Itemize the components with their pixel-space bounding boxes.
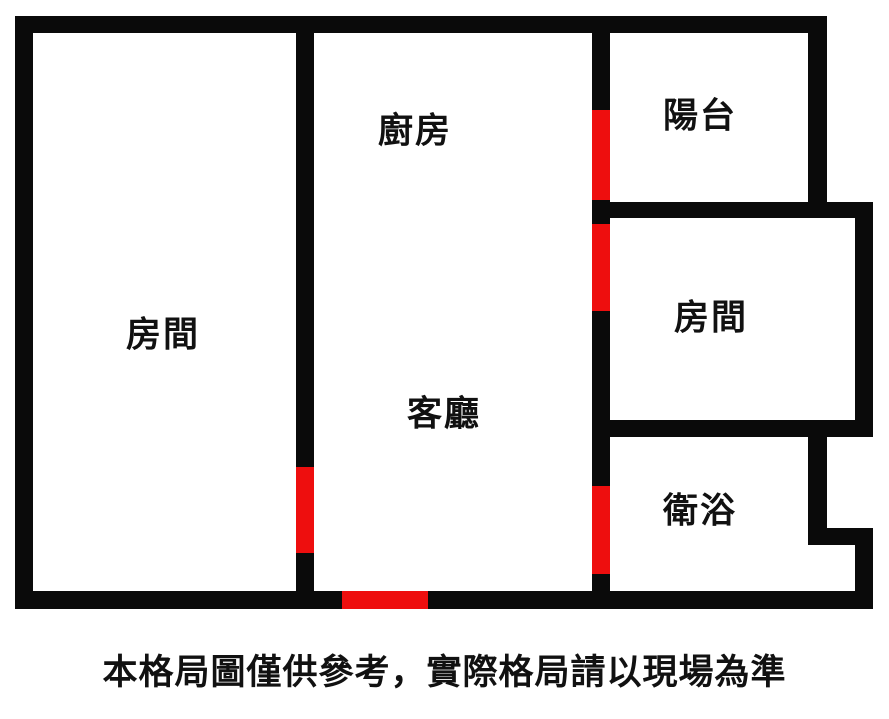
wall-bathroom-right <box>808 420 827 545</box>
floorplan-canvas: 房間廚房客廳陽台房間衛浴 <box>0 0 889 640</box>
door-main-entrance <box>342 591 428 609</box>
wall-balcony-right <box>808 16 827 218</box>
room-label-kitchen: 廚房 <box>378 114 452 149</box>
wall-bottom <box>15 591 873 609</box>
door-bedroom-left <box>296 467 314 553</box>
door-bathroom <box>592 486 610 574</box>
wall-balcony-bottom <box>592 202 873 218</box>
wall-top <box>15 16 827 33</box>
wall-bedroom-right-bathroom-divider <box>592 420 873 437</box>
room-label-balcony: 陽台 <box>663 99 737 134</box>
room-label-bathroom: 衛浴 <box>663 494 737 529</box>
wall-outer-right-lower <box>855 528 873 609</box>
disclaimer-text: 本格局圖僅供參考，實際格局請以現場為準 <box>0 653 889 693</box>
door-balcony <box>592 110 610 200</box>
door-bedroom-right <box>592 224 610 311</box>
room-label-living-room: 客廳 <box>407 397 481 432</box>
wall-left <box>15 16 33 609</box>
room-label-bedroom-left: 房間 <box>126 318 200 353</box>
wall-outer-right-upper <box>855 202 873 436</box>
room-label-bedroom-right: 房間 <box>674 301 748 336</box>
floorplan-page: 房間廚房客廳陽台房間衛浴 本格局圖僅供參考，實際格局請以現場為準 <box>0 0 889 719</box>
